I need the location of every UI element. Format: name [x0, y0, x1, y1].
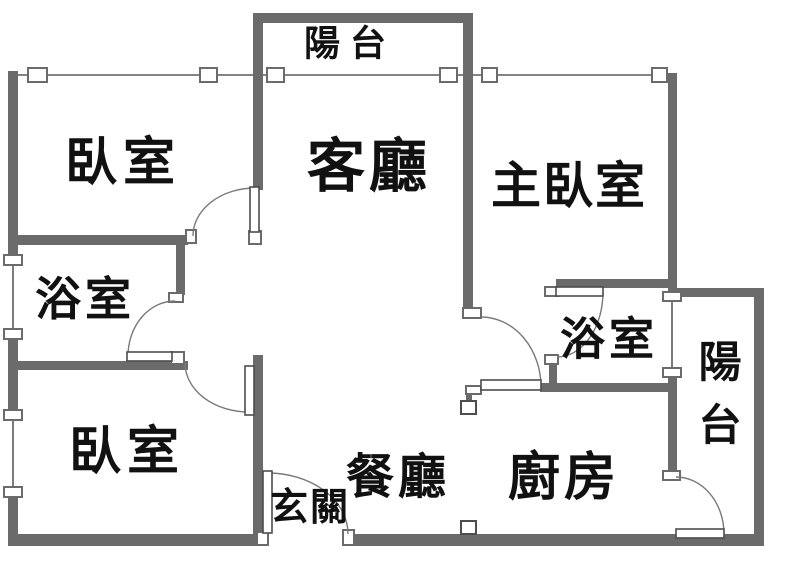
- window-master-north-frame-box: [482, 68, 497, 82]
- window-balcony-slider-frame-box: [267, 68, 284, 82]
- door-bath1-swing-arc: [128, 301, 175, 356]
- jamb-balcony2-top: [663, 471, 680, 480]
- floor-plan-svg: 陽台臥室客廳主臥室浴室浴室臥室玄關餐廳廚房陽台: [0, 0, 800, 576]
- room-label-balcony-top: 陽台: [304, 24, 396, 65]
- wall-master-east: [668, 73, 677, 295]
- wall-bath2-west-stub: [549, 363, 557, 385]
- door-bedroom2-swing-arc: [185, 363, 249, 412]
- wall-left-upper: [8, 71, 18, 256]
- room-label-dining: 餐廳: [346, 449, 450, 505]
- jamb-bedroom1-left: [186, 230, 196, 243]
- room-label-bedroom1: 臥室: [65, 133, 181, 193]
- wall-bottom-left: [8, 534, 267, 546]
- jamb-kitchen-hinge: [466, 386, 481, 394]
- wall-living-master: [463, 13, 473, 310]
- wall-bath2-south: [540, 383, 676, 392]
- jamb-entry-hinge: [257, 532, 268, 545]
- door-balcony2-swing-arc: [676, 477, 724, 534]
- window-bath1-west-frame-box: [4, 255, 22, 265]
- wall-balcony2-north: [672, 288, 764, 297]
- window-bedroom1-north-frame-box: [28, 68, 47, 82]
- room-label-bedroom2: 臥室: [69, 422, 185, 482]
- room-label-bath2: 浴室: [560, 313, 658, 366]
- wall-balcony-top: [253, 13, 472, 23]
- room-label-entry: 玄關: [270, 485, 350, 529]
- door-kitchen-swing-arc: [481, 317, 541, 387]
- wall-bath1-north: [8, 235, 188, 245]
- door-bath1-leaf: [127, 352, 172, 361]
- door-bath2-leaf: [556, 287, 603, 296]
- wall-left-mid: [8, 338, 18, 411]
- room-label-living: 客廳: [307, 132, 431, 200]
- jamb-bath2-bottom: [545, 355, 558, 364]
- window-bath1-west-frame-box: [4, 329, 22, 339]
- wall-right-exterior: [754, 290, 764, 546]
- door-bedroom2-leaf: [245, 366, 254, 415]
- door-bedroom1-leaf: [250, 187, 259, 232]
- wall-balcony2-west: [668, 376, 677, 472]
- door-balcony2-leaf: [676, 529, 724, 538]
- door-bedroom1-swing-arc: [193, 188, 255, 236]
- room-label-master: 主臥室: [491, 157, 647, 215]
- floor-plan: 陽台臥室客廳主臥室浴室浴室臥室玄關餐廳廚房陽台: [0, 0, 800, 576]
- wall-bedroom1-living: [253, 13, 263, 190]
- window-bedroom2-west-frame-box: [4, 487, 22, 497]
- column-marker-lower: [461, 521, 476, 534]
- window-bedroom1-north-frame-box: [200, 68, 217, 82]
- room-label-balcony-right: 陽台: [699, 338, 742, 451]
- jamb-kitchen-top: [463, 308, 481, 318]
- room-label-bath1: 浴室: [35, 272, 135, 326]
- column-marker-upper: [461, 401, 476, 414]
- window-bedroom2-west-frame-box: [4, 410, 22, 420]
- room-label-kitchen: 廚房: [508, 448, 620, 508]
- window-bath2-balcony-frame-box: [663, 368, 681, 377]
- jamb-bath1-bottom: [171, 352, 184, 364]
- wall-bath1-east: [176, 243, 185, 295]
- window-bath2-balcony-frame-box: [663, 292, 681, 301]
- door-kitchen-leaf: [481, 380, 541, 390]
- window-balcony-slider-frame-box: [440, 68, 457, 82]
- wall-bath1-south: [8, 361, 188, 370]
- jamb-bedroom1-hinge: [249, 231, 261, 244]
- window-master-north-frame-box: [652, 68, 667, 82]
